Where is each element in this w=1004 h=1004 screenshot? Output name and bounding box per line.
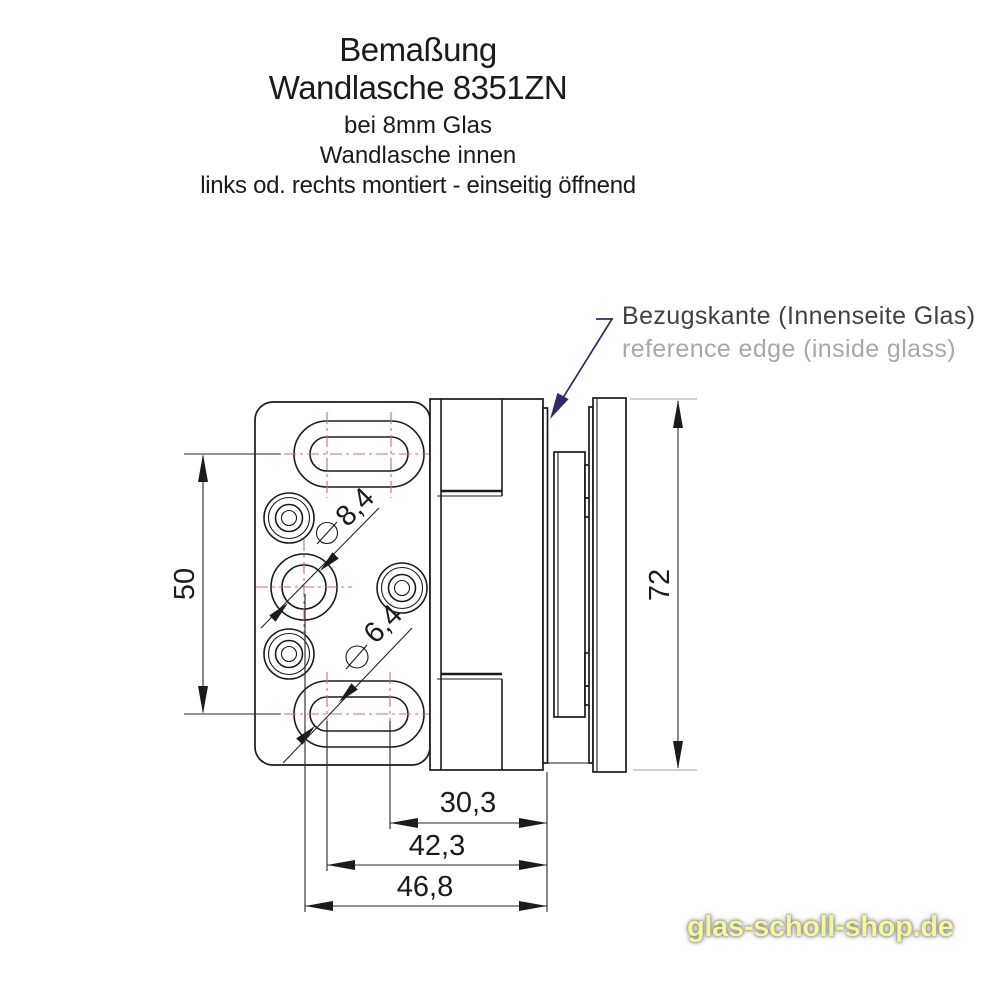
shop-watermark: glas-scholl-shop.de	[687, 911, 954, 944]
dimension-72: 72	[630, 399, 697, 770]
hinge-body-side-view	[430, 399, 543, 770]
drawing-page: Bemaßung Wandlasche 8351ZN bei 8mm Glas …	[0, 0, 1004, 1004]
dim-46-8-value: 46,8	[397, 871, 453, 903]
glass-clamp-assembly	[543, 398, 626, 772]
body-outline	[430, 399, 543, 770]
dim-30-3-value: 30,3	[440, 787, 496, 819]
gasket-block	[554, 452, 585, 717]
dim-42-3-value: 42,3	[409, 830, 465, 862]
technical-drawing: 50 72 8,4	[0, 0, 1004, 1004]
dim-50-value: 50	[169, 568, 201, 600]
outer-clamp-plate	[593, 398, 626, 772]
plate-outline	[255, 402, 430, 765]
glass-edge-strip	[543, 408, 548, 763]
dim-72-value: 72	[644, 569, 676, 601]
leader-arrowhead	[550, 393, 569, 419]
mounting-plate	[255, 402, 430, 765]
